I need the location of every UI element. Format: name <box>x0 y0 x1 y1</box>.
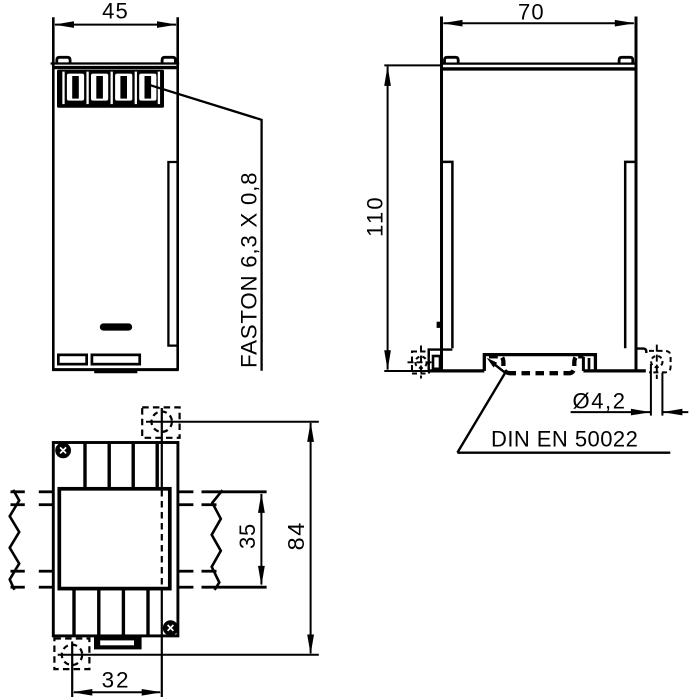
svg-text:110: 110 <box>363 195 388 237</box>
svg-text:70: 70 <box>518 0 545 25</box>
svg-text:84: 84 <box>283 521 309 550</box>
svg-text:FASTON 6,3 X 0,8: FASTON 6,3 X 0,8 <box>237 172 262 368</box>
svg-text:DIN EN 50022: DIN EN 50022 <box>491 427 638 452</box>
svg-text:Ø4,2: Ø4,2 <box>573 389 627 414</box>
svg-text:32: 32 <box>102 668 131 693</box>
svg-text:45: 45 <box>102 0 129 24</box>
svg-text:35: 35 <box>235 523 260 549</box>
